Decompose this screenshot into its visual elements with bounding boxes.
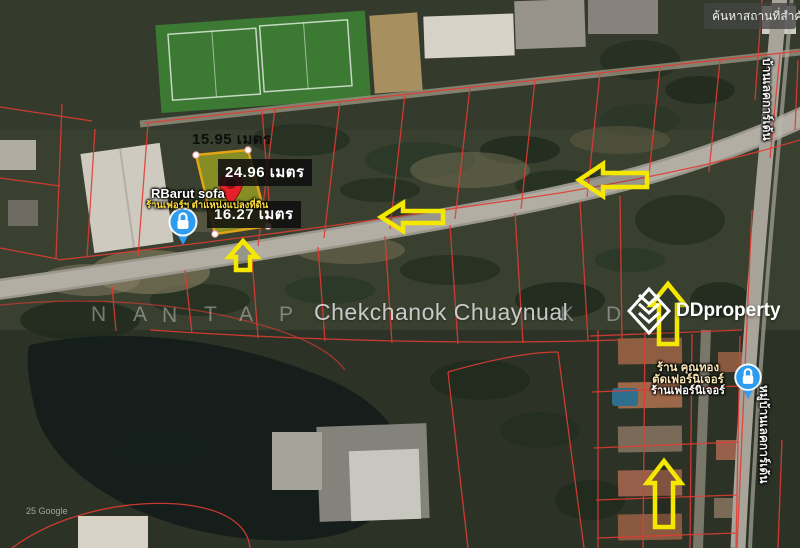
ddproperty-logo-text: DDproperty <box>676 300 781 322</box>
google-credit-fragment: 25 Google <box>26 506 68 516</box>
watermark-letter: K <box>560 303 574 327</box>
watermark-letter: N <box>91 303 106 327</box>
map-viewport[interactable]: ค้นหาสถานที่สำคัญ 15.95 เมตร 24.96 เมตร … <box>0 0 800 548</box>
street-label-right-top: บ้านเลคการ์เด้น <box>757 58 776 141</box>
watermark-letter: P <box>279 303 293 327</box>
poi-shop-right-line1: ร้าน คุณทอง <box>633 362 743 374</box>
ddproperty-diamond-icon <box>626 286 672 336</box>
ddproperty-logo: DDproperty <box>626 286 781 336</box>
poi-shop-right-line3: ร้านเฟอร์นิเจอร์ <box>633 386 743 398</box>
watermark-letter: T <box>204 303 217 327</box>
search-input[interactable]: ค้นหาสถานที่สำคัญ <box>704 3 796 29</box>
poi-shop-right-label[interactable]: ร้าน คุณทอง ตัดเฟอร์นิเจอร์ ร้านเฟอร์นิเ… <box>633 362 743 398</box>
measurement-side-length: 24.96 เมตร <box>218 159 312 186</box>
measurement-top-width: 15.95 เมตร <box>192 127 272 151</box>
watermark-letter: A <box>239 303 253 327</box>
watermark-name: Chekchanok Chuaynual <box>314 299 568 326</box>
watermark-letter: D <box>606 303 621 327</box>
watermark-letter: N <box>162 304 177 328</box>
street-label-right-bottom: หมู่บ้านเลคการ์เด้น <box>754 385 773 483</box>
poi-shop-main-caption: ร้านเฟอร์ฯ ตำแหน่งแปลงที่ดิน <box>146 198 268 213</box>
satellite-map-image <box>0 0 800 548</box>
watermark-letter: A <box>133 303 147 327</box>
